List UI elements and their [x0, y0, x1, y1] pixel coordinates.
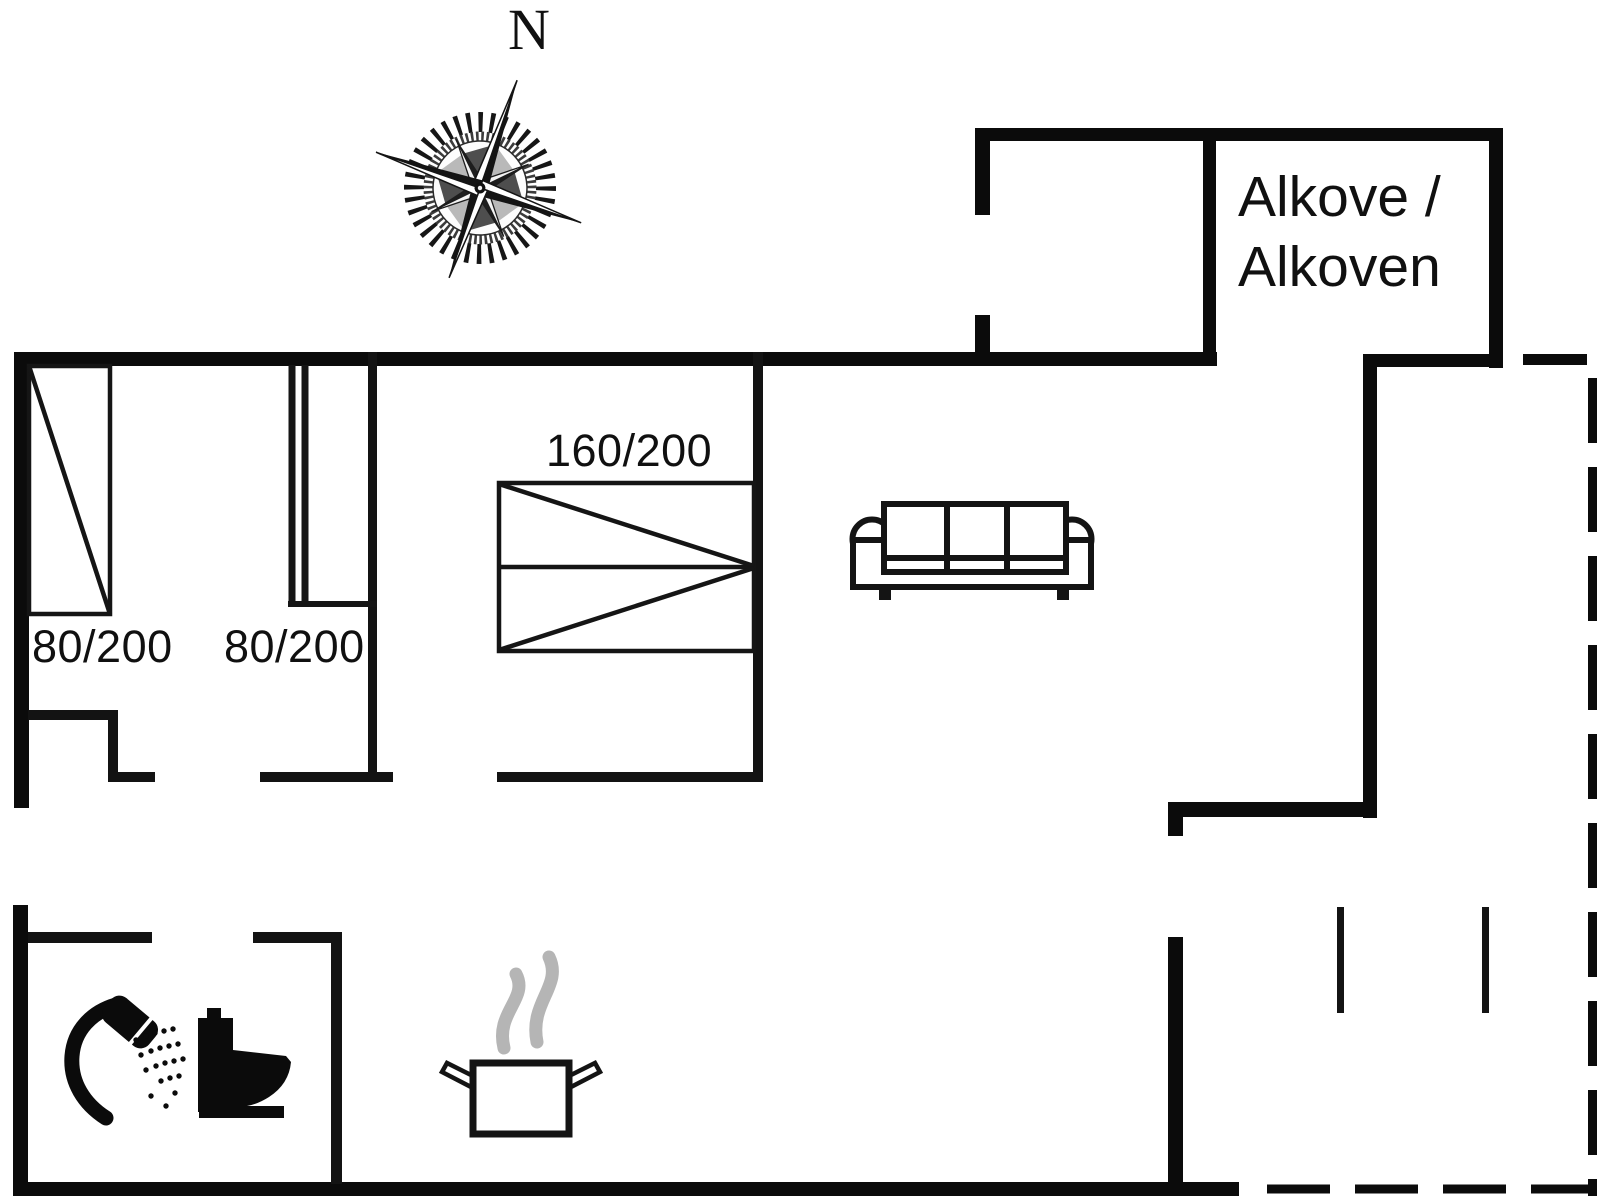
compass-north-label: N: [508, 0, 550, 60]
rail-line: [1482, 907, 1489, 1013]
bed-size-label-left: 80/200: [32, 624, 173, 669]
bed-size-label-double: 160/200: [546, 428, 712, 473]
toilet-icon: [198, 1008, 291, 1118]
sofa-leg: [879, 585, 891, 600]
bed-diagonal: [499, 484, 754, 566]
wall-topright-top: [975, 128, 1503, 141]
shower-head: [97, 990, 163, 1053]
wall-living-door-stub: [1168, 802, 1183, 836]
wall-bedrooms-bottom-seg3: [497, 772, 763, 782]
wall-bottom-outer: [13, 1182, 1239, 1196]
pot-body: [473, 1063, 569, 1134]
sofa-leg: [1057, 585, 1069, 600]
terrace-dashed-boundary: [1267, 354, 1593, 1196]
wall-topmid-left-upper: [975, 128, 990, 215]
bed-single-right-icon: [288, 365, 377, 607]
steam-icon: [502, 957, 552, 1048]
floor-plan: N Alkove /Alkoven 80/200 80/200 160/200: [0, 0, 1600, 1200]
steam-wisp: [536, 957, 553, 1042]
bed-size-label-middle: 80/200: [224, 624, 365, 669]
wall-alcove-right: [1489, 128, 1503, 368]
bed-diagonal: [29, 366, 110, 614]
bed-diagonal: [499, 568, 754, 650]
shower-icon: [72, 990, 186, 1118]
wall-bathroom-top-right: [253, 932, 342, 943]
rail-line: [1337, 907, 1344, 1013]
steam-wisp: [502, 974, 519, 1048]
toilet-foot: [199, 1106, 284, 1118]
cooking-pot-icon: [442, 1063, 600, 1134]
wall-bedrooms-bottom-seg2: [260, 772, 393, 782]
wall-bathroom-left-outer: [13, 905, 28, 1196]
terrace-rail-lines: [1337, 907, 1489, 1013]
sofa-cushions: [884, 504, 1066, 558]
wall-bedroom1-step-horizontal: [28, 710, 118, 720]
toilet-bowl: [233, 1050, 291, 1107]
wall-main-horizontal: [15, 352, 1217, 366]
wall-lower-right-vertical: [1168, 937, 1183, 1196]
wall-bedroom2-right: [368, 352, 377, 782]
sofa-front-band: [884, 558, 1066, 572]
compass-cardinal-points: [345, 44, 618, 312]
wall-living-south-horizontal: [1168, 802, 1377, 817]
compass-rose-icon: [345, 44, 618, 312]
wall-alcove-divider: [1203, 128, 1216, 366]
alcove-room-label: Alkove /Alkoven: [1238, 162, 1441, 302]
sofa-icon: [853, 504, 1092, 600]
wall-bathroom-right: [331, 932, 342, 1184]
interior-walls: [28, 352, 763, 1184]
wall-bathroom-top-left: [28, 932, 152, 943]
bed-double-icon: [499, 483, 754, 651]
wall-below-alcove: [1363, 354, 1503, 367]
alcove-label-line2: Alkoven: [1238, 235, 1441, 299]
bed-single-left-icon: [29, 366, 110, 614]
wall-topmid-left-lower: [975, 315, 990, 360]
alcove-label-line1: Alkove /: [1238, 165, 1441, 229]
pot-handle-left: [442, 1063, 473, 1088]
pot-handle-right: [569, 1063, 600, 1088]
dash-segment-top: [1523, 354, 1587, 365]
wall-bedroom1-step-vertical: [108, 710, 118, 780]
toilet-tank: [198, 1018, 233, 1112]
wall-alcove-south-vertical: [1363, 354, 1377, 818]
